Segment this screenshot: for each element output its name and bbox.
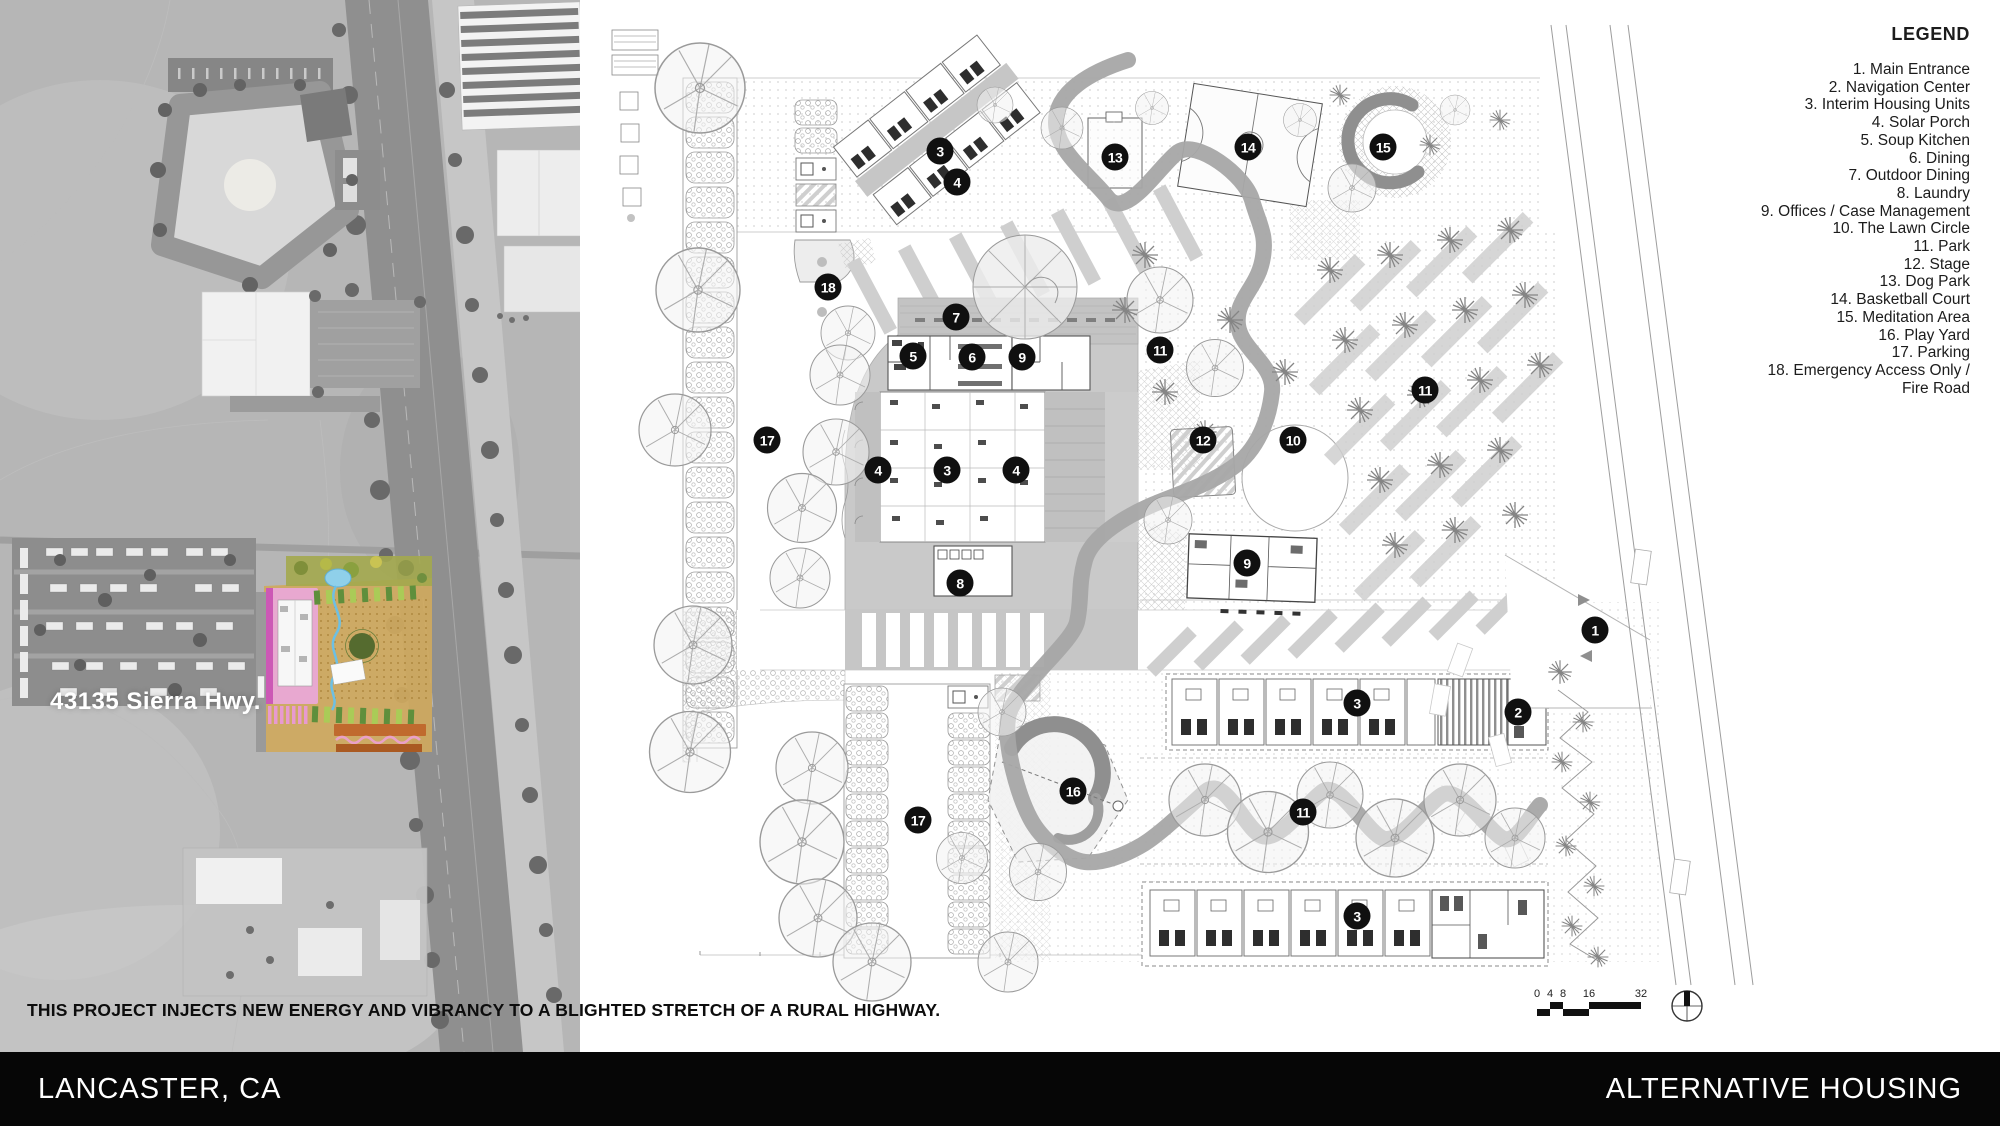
plan-marker-6: 6 <box>959 344 986 371</box>
legend-item: 16. Play Yard <box>1640 327 1970 345</box>
plan-marker-2: 2 <box>1505 699 1532 726</box>
warehouse-striped <box>458 2 584 130</box>
plan-marker-9: 9 <box>1234 550 1261 577</box>
plan-marker-14: 14 <box>1235 134 1262 161</box>
mobile-home-park <box>12 538 256 706</box>
plan-marker-17: 17 <box>905 807 932 834</box>
legend-item: 4. Solar Porch <box>1640 114 1970 132</box>
legend-item: 1. Main Entrance <box>1640 61 1970 79</box>
legend-items: 1. Main Entrance2. Navigation Center3. I… <box>1640 61 1970 397</box>
scale-label: 16 <box>1583 988 1595 1000</box>
legend-item: 7. Outdoor Dining <box>1640 167 1970 185</box>
legend-item: 17. Parking <box>1640 344 1970 362</box>
plan-marker-7: 7 <box>943 304 970 331</box>
legend-item: 9. Offices / Case Management <box>1640 203 1970 221</box>
plan-marker-3: 3 <box>1344 903 1371 930</box>
plan-marker-18: 18 <box>815 274 842 301</box>
legend-item: 13. Dog Park <box>1640 273 1970 291</box>
legend-item: 3. Interim Housing Units <box>1640 96 1970 114</box>
site-plan <box>612 25 1753 1021</box>
legend-item: 15. Meditation Area <box>1640 309 1970 327</box>
legend-item: 5. Soup Kitchen <box>1640 132 1970 150</box>
scale-bar <box>1537 1002 1641 1016</box>
housing-row-south <box>1142 882 1548 966</box>
plan-marker-11: 11 <box>1147 337 1174 364</box>
footer-bar: LANCASTER, CA ALTERNATIVE HOUSING <box>0 1052 2000 1126</box>
plan-marker-8: 8 <box>947 570 974 597</box>
address-label: 43135 Sierra Hwy. <box>50 688 261 716</box>
industrial-yard <box>183 848 427 996</box>
legend-item: 10. The Lawn Circle <box>1640 220 1970 238</box>
presentation-board: 43135 Sierra Hwy. THIS PROJECT INJECTS N… <box>0 0 2000 1126</box>
project-statement: THIS PROJECT INJECTS NEW ENERGY AND VIBR… <box>27 1000 940 1021</box>
plan-marker-16: 16 <box>1060 778 1087 805</box>
plan-marker-12: 12 <box>1190 427 1217 454</box>
legend-item: 11. Park <box>1640 238 1970 256</box>
legend-item: 18. Emergency Access Only / Fire Road <box>1640 362 1970 397</box>
plan-marker-15: 15 <box>1370 134 1397 161</box>
legend-item: 14. Basketball Court <box>1640 291 1970 309</box>
spiral-tree <box>973 235 1077 339</box>
legend-title: LEGEND <box>1640 24 1970 45</box>
scale-label: 4 <box>1547 988 1553 1000</box>
legend-item: 12. Stage <box>1640 256 1970 274</box>
legend-item: 2. Navigation Center <box>1640 79 1970 97</box>
plan-marker-13: 13 <box>1102 144 1129 171</box>
plan-marker-11: 11 <box>1290 799 1317 826</box>
plan-marker-3: 3 <box>934 457 961 484</box>
scale-label: 0 <box>1534 988 1540 1000</box>
plan-marker-3: 3 <box>1344 690 1371 717</box>
footer-project-title: ALTERNATIVE HOUSING <box>1606 1073 1962 1106</box>
plan-marker-10: 10 <box>1280 427 1307 454</box>
legend-item: 6. Dining <box>1640 150 1970 168</box>
plan-marker-1: 1 <box>1582 617 1609 644</box>
plan-marker-4: 4 <box>1003 457 1030 484</box>
aerial-photo <box>0 0 584 1052</box>
plan-marker-11: 11 <box>1412 377 1439 404</box>
utility-pads <box>612 30 658 222</box>
plan-marker-4: 4 <box>944 169 971 196</box>
legend-item: 8. Laundry <box>1640 185 1970 203</box>
plan-marker-9: 9 <box>1009 344 1036 371</box>
scale-label: 32 <box>1635 988 1647 1000</box>
scale-label: 8 <box>1560 988 1566 1000</box>
plan-marker-4: 4 <box>865 457 892 484</box>
laundry <box>934 546 1012 596</box>
legend: LEGEND 1. Main Entrance2. Navigation Cen… <box>1640 24 1970 397</box>
colored-plan-overlay <box>256 556 432 752</box>
plan-marker-5: 5 <box>900 343 927 370</box>
plan-marker-3: 3 <box>927 138 954 165</box>
footer-location: LANCASTER, CA <box>38 1073 281 1106</box>
north-arrow-icon <box>1672 991 1702 1021</box>
plan-marker-17: 17 <box>754 427 781 454</box>
